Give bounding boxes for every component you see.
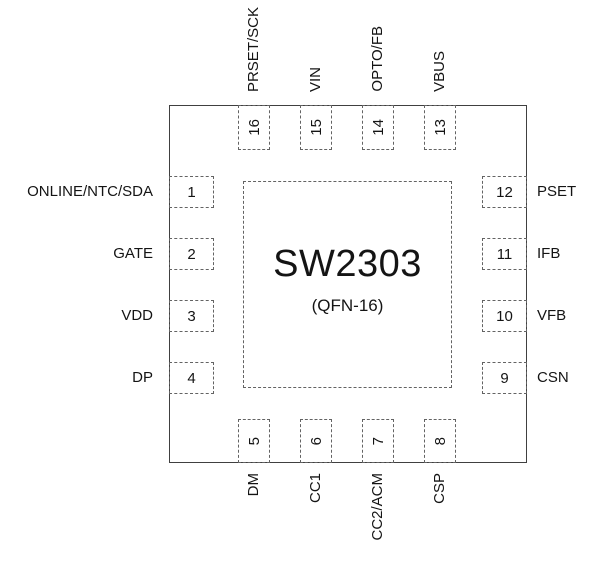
pin-box-10: 10	[482, 300, 527, 332]
pin-label-12: PSET	[537, 176, 576, 208]
pin-number-2: 2	[187, 246, 195, 263]
pin-box-5: 5	[238, 419, 270, 463]
pin-number-16: 16	[246, 119, 263, 136]
pin-box-14: 14	[362, 105, 394, 150]
pin-number-3: 3	[187, 308, 195, 325]
pin-number-7: 7	[370, 437, 387, 445]
pin-number-8: 8	[432, 437, 449, 445]
pin-box-8: 8	[424, 419, 456, 463]
pin-label-15: VIN	[306, 67, 326, 92]
pin-label-9: CSN	[537, 362, 569, 394]
pin-number-6: 6	[308, 437, 325, 445]
pin-number-12: 12	[496, 184, 513, 201]
pin-label-11: IFB	[537, 238, 560, 270]
pin-number-11: 11	[497, 246, 513, 263]
pin-box-12: 12	[482, 176, 527, 208]
pin-number-9: 9	[500, 370, 508, 387]
pin-box-1: 1	[169, 176, 214, 208]
chip-package: (QFN-16)	[243, 296, 452, 316]
pin-number-13: 13	[432, 119, 449, 136]
pin-number-4: 4	[187, 370, 195, 387]
pin-box-2: 2	[169, 238, 214, 270]
pin-number-15: 15	[308, 119, 325, 136]
pin-label-13: VBUS	[430, 51, 450, 92]
pinout-diagram: SW2303 (QFN-16) 1 ONLINE/NTC/SDA 2 GATE …	[0, 0, 615, 569]
pin-box-11: 11	[482, 238, 527, 270]
pin-box-3: 3	[169, 300, 214, 332]
pin-box-13: 13	[424, 105, 456, 150]
pin-label-8: CSP	[430, 473, 450, 504]
pin-number-1: 1	[187, 184, 195, 201]
pin-label-1: ONLINE/NTC/SDA	[0, 176, 153, 208]
pin-label-2: GATE	[0, 238, 153, 270]
pin-number-10: 10	[496, 308, 513, 325]
pin-label-7: CC2/ACM	[368, 473, 388, 541]
pin-label-14: OPTO/FB	[368, 26, 388, 92]
pin-number-5: 5	[246, 437, 263, 445]
pin-label-6: CC1	[306, 473, 326, 503]
pin-label-4: DP	[0, 362, 153, 394]
pin-box-15: 15	[300, 105, 332, 150]
pin-number-14: 14	[370, 119, 387, 136]
pin-label-16: PRSET/SCK	[244, 7, 264, 92]
chip-name: SW2303	[243, 241, 452, 287]
pin-label-5: DM	[244, 473, 264, 496]
pin-box-6: 6	[300, 419, 332, 463]
pin-label-10: VFB	[537, 300, 566, 332]
pin-box-7: 7	[362, 419, 394, 463]
pin-box-9: 9	[482, 362, 527, 394]
pin-label-3: VDD	[0, 300, 153, 332]
pin-box-4: 4	[169, 362, 214, 394]
pin-box-16: 16	[238, 105, 270, 150]
